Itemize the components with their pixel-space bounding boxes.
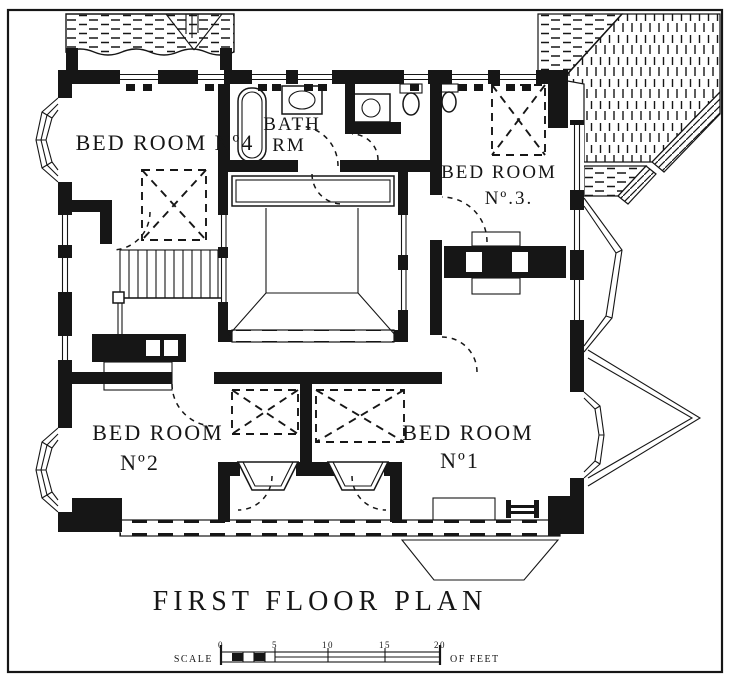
foot-bath: [352, 94, 390, 122]
bedroom4-label: BED ROOM Nº4: [76, 130, 255, 155]
radiator: [506, 500, 539, 518]
scale-units-label: OF FEET: [450, 654, 500, 665]
bay-window-bedroom1: [584, 392, 604, 478]
roof-bay-zigzag-right: [584, 198, 622, 352]
closet-bedroom1: [316, 390, 404, 442]
bedroom1-label-line2: Nº1: [440, 448, 480, 473]
bedroom2-label-line1: BED ROOM: [92, 420, 224, 445]
scale-tick-15: 15: [379, 640, 391, 650]
toilet-right: [440, 84, 458, 112]
roof-post-right: [220, 48, 232, 72]
scale-tick-5: 5: [272, 640, 278, 650]
first-floor-plan-drawing: BED ROOM Nº4 BATH RM BED ROOM Nº.3. BED …: [0, 0, 730, 684]
central-light-well: [228, 176, 396, 336]
bedroom3-label-line2: Nº.3.: [485, 188, 534, 209]
scale-tick-20: 20: [434, 640, 446, 650]
newel-post: [113, 292, 124, 303]
closet-bedroom2: [232, 390, 298, 434]
closet-bedroom4: [142, 170, 206, 240]
scale-tick-10: 10: [322, 640, 334, 650]
porch-roof-outline: [402, 540, 558, 580]
scale-tick-0: 0: [218, 640, 224, 650]
staircase: [113, 250, 222, 336]
bay-window-bedroom4: [36, 98, 58, 182]
roof-post-left: [66, 48, 78, 72]
roof-top-left: [66, 14, 234, 72]
scale-bar: SCALE 0 5 10 15 20 OF FEET: [174, 640, 500, 665]
drawing-title: FIRST FLOOR PLAN: [153, 586, 488, 617]
floor-plan-page: BED ROOM Nº4 BATH RM BED ROOM Nº.3. BED …: [0, 0, 730, 684]
bay-window-bedroom2: [36, 428, 58, 512]
roof-bay-gable-right: [588, 350, 700, 486]
bath-label-line1: BATH: [263, 114, 321, 135]
bedroom3-label-line1: BED ROOM: [441, 162, 557, 183]
bath-label-line2: RM: [272, 135, 306, 156]
sink: [282, 86, 322, 114]
window-sill-tabs: [126, 84, 531, 91]
bedroom2-label-line2: Nº2: [120, 450, 160, 475]
window-seat-bedroom1: [433, 498, 495, 520]
scale-label: SCALE: [174, 654, 213, 665]
bedroom1-label-line1: BED ROOM: [402, 420, 534, 445]
closet-bedroom3: [492, 85, 545, 155]
